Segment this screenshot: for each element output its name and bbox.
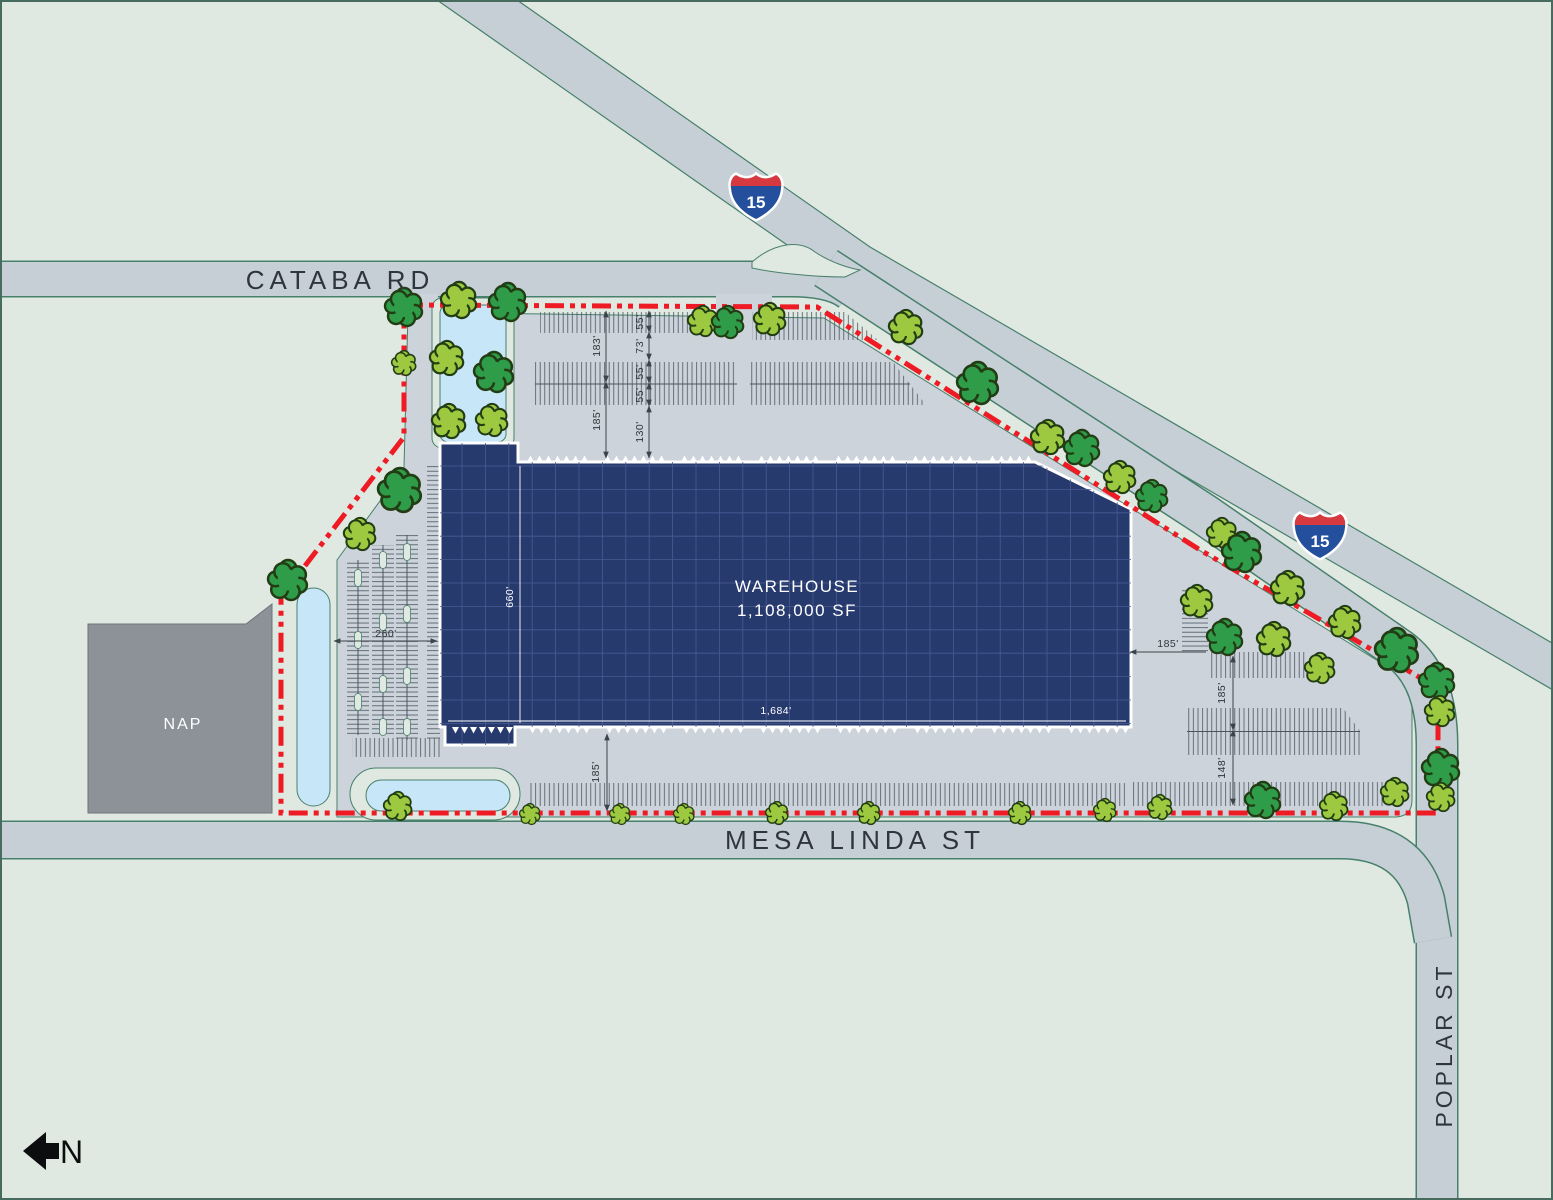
nap-building: NAP	[88, 604, 272, 813]
road-label-cataba: CATABA RD	[246, 265, 435, 295]
dim-73: 73'	[634, 338, 646, 353]
shield-number-2: 15	[1311, 532, 1330, 551]
north-arrow-label: N	[60, 1134, 83, 1170]
warehouse-name: WAREHOUSE	[735, 577, 859, 596]
site-plan-map: NAP WAREHOUSE 1,108,000 SF 660' 1,684' 1…	[0, 0, 1553, 1200]
dim-55-c: 55'	[634, 387, 646, 402]
shield-number-1: 15	[747, 193, 766, 212]
road-label-mesa-linda: MESA LINDA ST	[725, 825, 985, 855]
dim-260: 260'	[375, 628, 397, 640]
warehouse-building: WAREHOUSE 1,108,000 SF 660' 1,684'	[436, 438, 1135, 750]
warehouse-depth-dim: 660'	[504, 586, 516, 608]
warehouse-width-dim: 1,684'	[760, 705, 791, 717]
warehouse-size: 1,108,000 SF	[737, 601, 857, 620]
dim-185-east-v: 185'	[1216, 682, 1228, 704]
dim-55-b: 55'	[634, 364, 646, 379]
dim-130: 130'	[634, 421, 646, 443]
dim-185-south: 185'	[590, 761, 602, 783]
dim-148: 148'	[1216, 757, 1228, 779]
pond-west	[297, 588, 330, 806]
nap-label: NAP	[164, 716, 203, 733]
dim-183: 183'	[591, 335, 603, 357]
dim-185-east-h: 185'	[1157, 638, 1179, 650]
road-label-poplar: POPLAR ST	[1431, 962, 1457, 1127]
dim-55-a: 55'	[634, 314, 646, 329]
dim-185-north: 185'	[591, 409, 603, 431]
site-plan-svg: NAP WAREHOUSE 1,108,000 SF 660' 1,684' 1…	[0, 0, 1553, 1200]
